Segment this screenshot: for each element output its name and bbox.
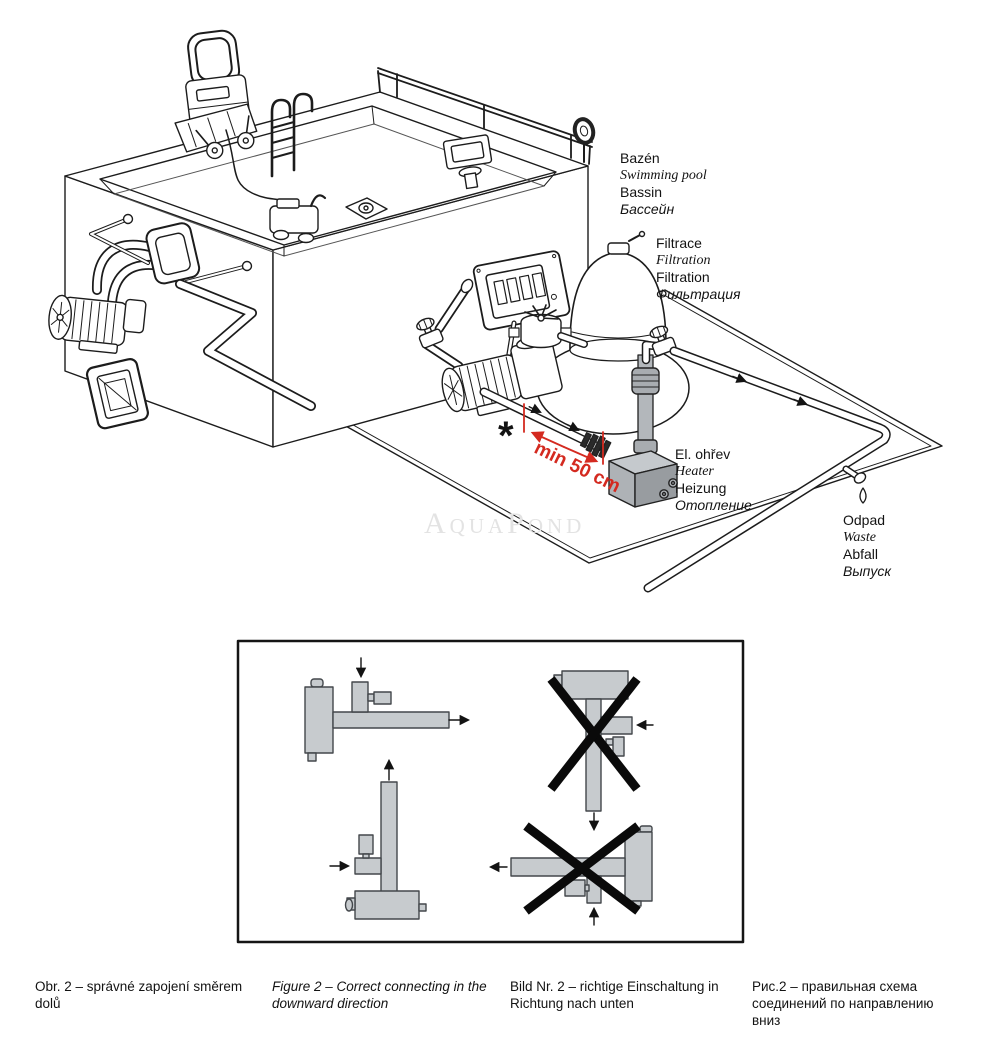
label-heater-cs: El. ohřev bbox=[675, 446, 752, 463]
water-drop-icon bbox=[860, 488, 866, 503]
label-waste-de: Abfall bbox=[843, 546, 891, 563]
caption-en: Figure 2 – Correct connecting in the dow… bbox=[272, 978, 504, 1012]
caption-cs: Obr. 2 – správné zapojení směrem dolů bbox=[35, 978, 250, 1012]
manual-page: AquaPond bbox=[0, 0, 1000, 1051]
cleaner-trolley bbox=[165, 28, 260, 163]
asterisk-note: * bbox=[498, 414, 514, 458]
label-heater-en: Heater bbox=[675, 463, 752, 480]
label-waste-en: Waste bbox=[843, 529, 891, 546]
label-filtration-de: Filtration bbox=[656, 269, 741, 286]
label-waste-ru: Выпуск bbox=[843, 563, 891, 580]
label-waste: Odpad Waste Abfall Выпуск bbox=[843, 512, 891, 580]
label-heater: El. ohřev Heater Heizung Отопление bbox=[675, 446, 752, 514]
label-heater-de: Heizung bbox=[675, 480, 752, 497]
label-waste-cs: Odpad bbox=[843, 512, 891, 529]
label-heater-ru: Отопление bbox=[675, 497, 752, 514]
figure-box bbox=[238, 641, 743, 942]
caption-de: Bild Nr. 2 – richtige Einschaltung in Ri… bbox=[510, 978, 738, 1012]
caption-ru: Рис.2 – правильная схема соединений по н… bbox=[752, 978, 942, 1029]
label-filtration-cs: Filtrace bbox=[656, 235, 741, 252]
label-pool-fr: Bassin bbox=[620, 184, 707, 201]
label-pool-en: Swimming pool bbox=[620, 167, 707, 184]
watermark-text: AquaPond bbox=[424, 507, 585, 540]
label-filtration-ru: Фильтрация bbox=[656, 286, 741, 303]
label-filtration-en: Filtration bbox=[656, 252, 741, 269]
label-pool-ru: Бассейн bbox=[620, 201, 707, 218]
thermometer-icon bbox=[572, 117, 596, 162]
label-pool: Bazén Swimming pool Bassin Бассейн bbox=[620, 150, 707, 218]
label-filtration: Filtrace Filtration Filtration Фильтраци… bbox=[656, 235, 741, 303]
label-pool-cs: Bazén bbox=[620, 150, 707, 167]
